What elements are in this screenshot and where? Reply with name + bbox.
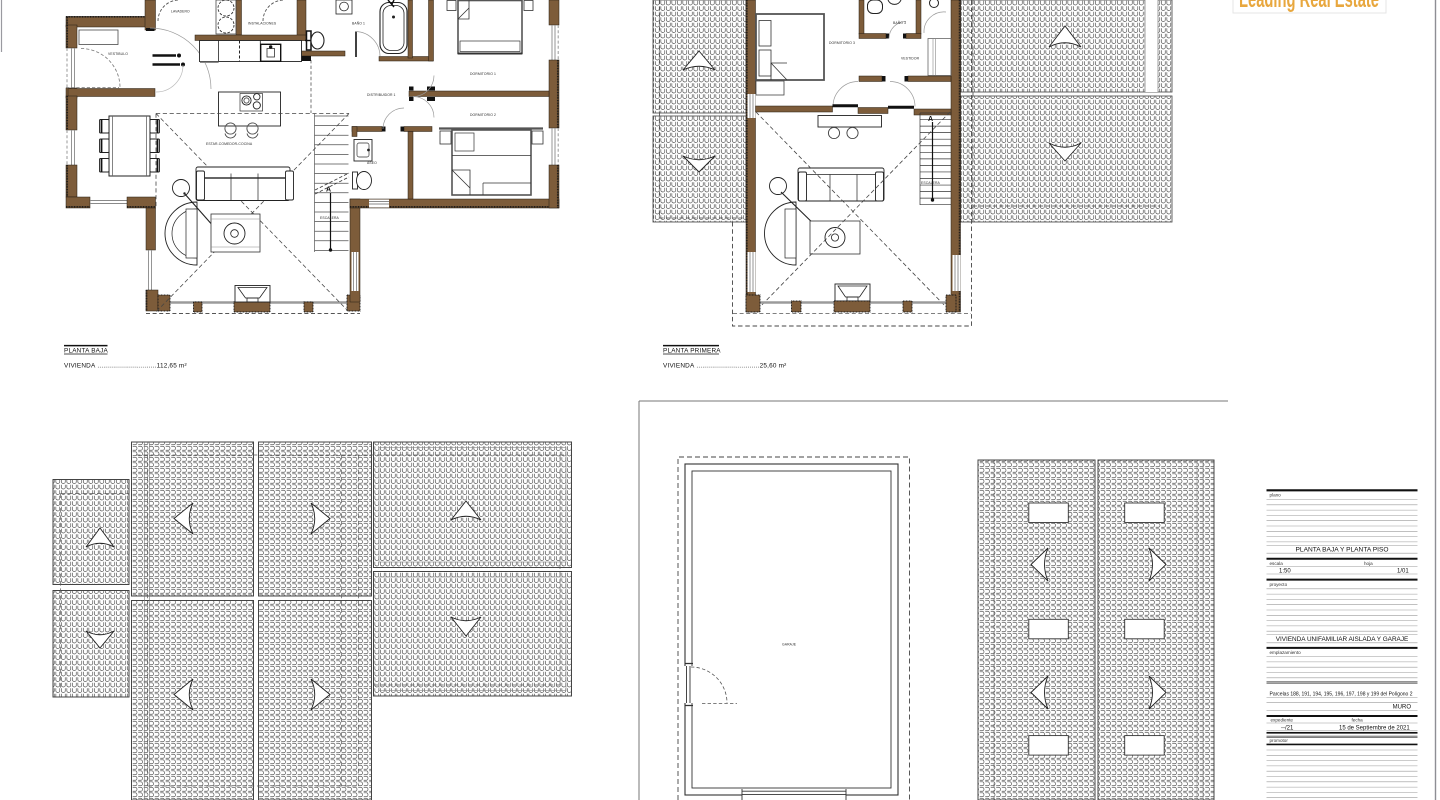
svg-text:A: A [326,187,331,194]
svg-text:DORMITORIO 2: DORMITORIO 2 [470,113,496,117]
svg-text:ESCALERA: ESCALERA [921,181,941,185]
svg-text:escala: escala [1270,561,1284,566]
svg-text:PLANTA BAJA: PLANTA BAJA [64,348,109,355]
svg-text:BAÑO 3: BAÑO 3 [893,20,906,25]
svg-text:VESTIDOR: VESTIDOR [901,57,920,61]
svg-text:VIVIENDA UNIFAMILIAR AISLADA Y: VIVIENDA UNIFAMILIAR AISLADA Y GARAJE [1276,636,1409,643]
svg-text:PLANTA BAJA Y PLANTA PISO: PLANTA BAJA Y PLANTA PISO [1296,547,1389,554]
svg-text:fecha: fecha [1352,718,1364,723]
svg-text:LAVADERO: LAVADERO [171,10,190,14]
svg-text:ESCALERA: ESCALERA [320,216,340,220]
svg-text:VESTIBULO: VESTIBULO [108,52,128,56]
svg-text:DORMITORIO 3: DORMITORIO 3 [829,41,855,45]
svg-text:1/01: 1/01 [1397,569,1409,575]
svg-text:ESTAR-COMEDOR-COCINA: ESTAR-COMEDOR-COCINA [206,142,253,146]
svg-text:DISTRIBUIDOR 1: DISTRIBUIDOR 1 [367,93,396,97]
svg-text:expediente: expediente [1271,718,1294,723]
svg-text:15 de Septiembre de 2021: 15 de Septiembre de 2021 [1339,725,1410,731]
svg-text:MURO: MURO [1393,705,1412,711]
svg-text:hoja: hoja [1364,561,1373,566]
svg-text:Leading Real Estate: Leading Real Estate [1239,0,1379,13]
svg-text:PLANTA PRIMERA: PLANTA PRIMERA [663,348,721,355]
svg-text:VIVIENDA .....................: VIVIENDA ..............................1… [64,363,187,370]
svg-text:Parcelas 188, 191, 194, 195, 1: Parcelas 188, 191, 194, 195, 196, 197, 1… [1270,692,1413,698]
svg-text:DORMITORIO 1: DORMITORIO 1 [470,72,496,76]
svg-text:BAÑO 1: BAÑO 1 [352,21,365,26]
svg-text:plano: plano [1270,493,1282,498]
svg-text:1:50: 1:50 [1279,569,1291,575]
svg-text:promotor: promotor [1270,738,1289,743]
svg-text:VIVIENDA .....................: VIVIENDA ...............................… [663,363,786,370]
svg-text:proyecto: proyecto [1270,582,1288,587]
svg-text:emplazamiento: emplazamiento [1270,650,1302,655]
svg-text:A: A [928,116,933,123]
svg-text:GARAJE: GARAJE [782,643,797,647]
svg-text:INSTALACIONES: INSTALACIONES [248,22,277,26]
svg-text:--/21: --/21 [1281,725,1294,731]
svg-text:ASEO: ASEO [367,161,377,165]
